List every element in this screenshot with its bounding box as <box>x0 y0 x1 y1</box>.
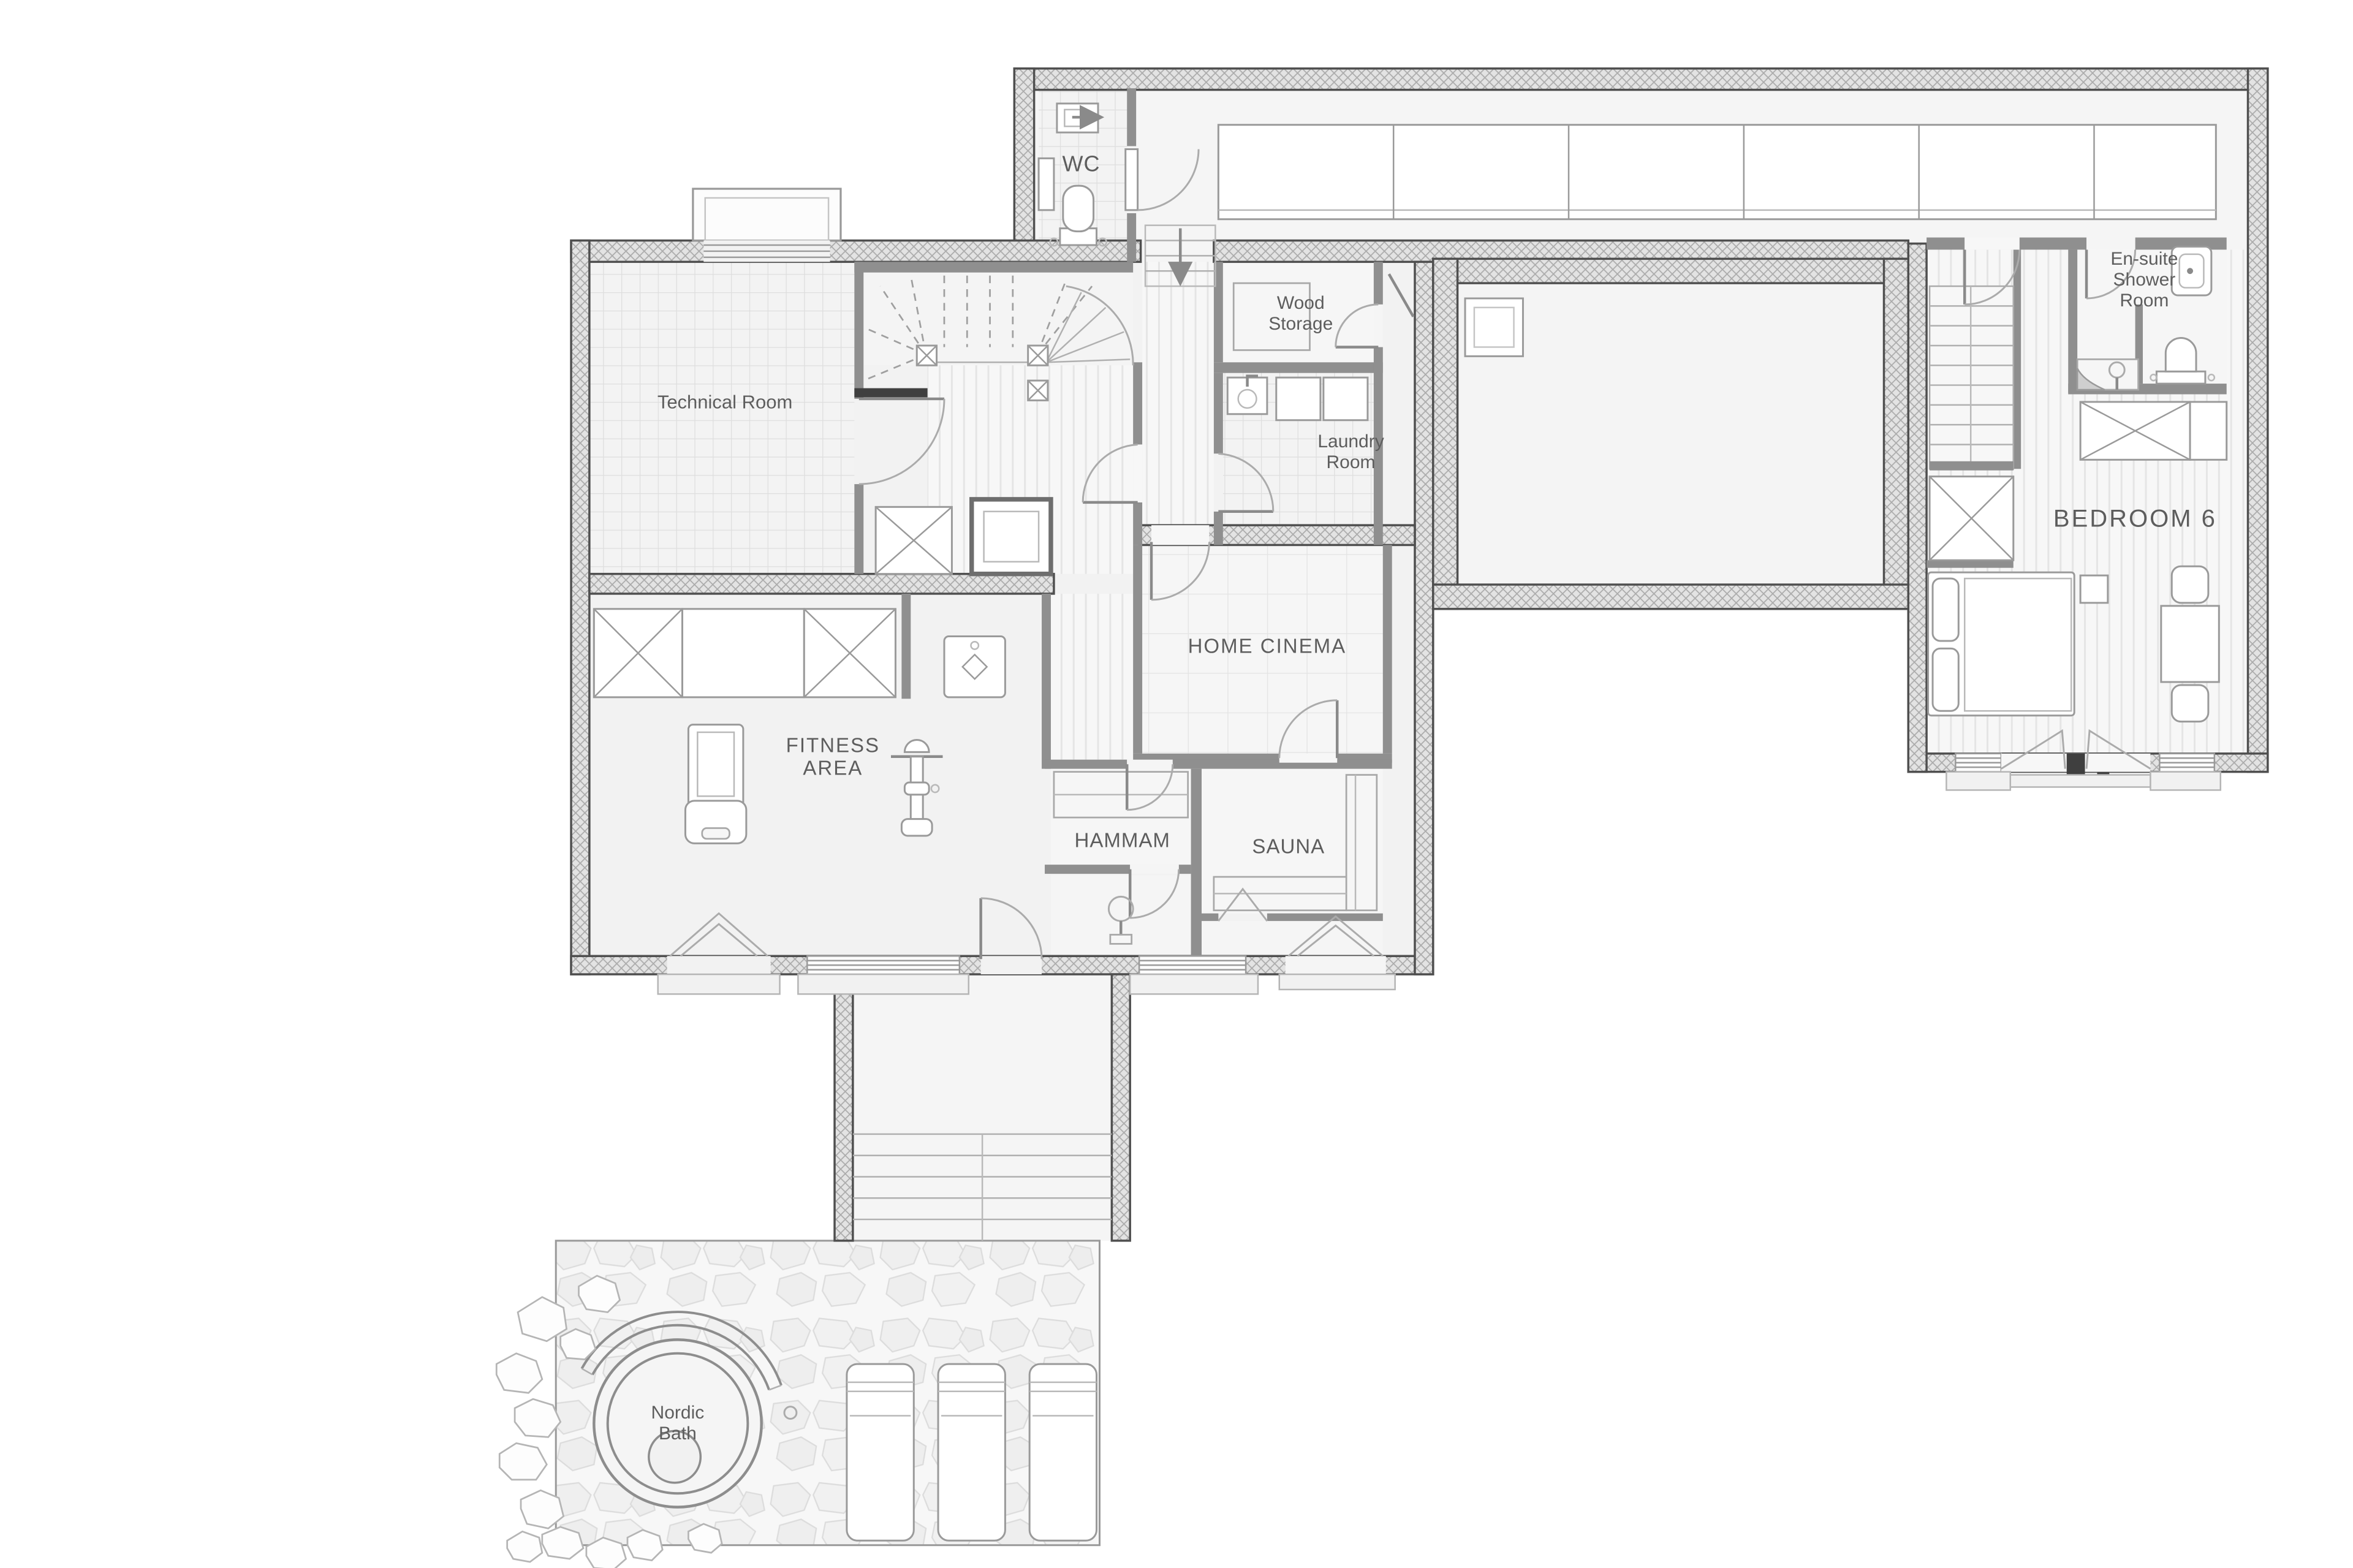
central-room-wall-top <box>1433 259 1908 283</box>
floor-plan: WC Wood Storage Laundry Room Technical R… <box>0 0 2353 1568</box>
wall-wing-left <box>1908 244 1927 772</box>
bed-icon <box>1928 572 2075 716</box>
fitness-window <box>798 956 968 994</box>
corridor-b-floor <box>1051 594 1133 760</box>
corridor-a-floor <box>1142 262 1214 545</box>
laundry-sink-icon <box>1227 376 1267 414</box>
basin-cabinet-icon <box>944 637 1005 697</box>
technical-room-floor <box>589 262 857 574</box>
central-room-wall-right <box>1884 259 1908 608</box>
wall-leftblock-top-w <box>571 241 1141 262</box>
wing-stairs <box>1930 286 2014 471</box>
wardrobe-run <box>1218 125 2216 219</box>
dryer-icon <box>1324 377 1368 420</box>
passage-wall-right <box>1112 974 1130 1241</box>
sun-loungers <box>847 1364 1097 1540</box>
ensuite-shower-icon <box>2077 359 2138 390</box>
sauna-bench-side <box>1346 775 1377 911</box>
wall-band-mid <box>589 574 1054 594</box>
central-room <box>1465 298 1523 356</box>
lift-shaft <box>972 499 1051 574</box>
sauna-vestibule-floor <box>1202 921 1383 956</box>
lounger-icon <box>1029 1364 1096 1540</box>
ensuite-basin-icon <box>2172 246 2211 295</box>
wall-top-left <box>1014 69 1034 262</box>
wood-stack <box>1233 283 1309 350</box>
lounger-icon <box>938 1364 1005 1540</box>
passage-wall-left <box>835 974 853 1241</box>
treadmill-icon <box>685 725 746 844</box>
wall-leftblock-right <box>1415 262 1433 974</box>
washer-icon <box>1276 377 1320 420</box>
wardrobe-icon <box>876 507 952 574</box>
floor-plan-drawing <box>0 0 2353 1568</box>
vestibule-window <box>1130 956 1258 994</box>
ensuite-wardrobe-icon <box>2080 402 2227 460</box>
wc-counter <box>1039 158 1054 210</box>
home-cinema-floor <box>1142 545 1383 753</box>
central-room-wall-bottom <box>1433 585 1908 609</box>
sink-icon <box>1057 104 1098 132</box>
central-room-wall-left <box>1433 259 1458 608</box>
light-well <box>693 189 841 240</box>
wall-right <box>2248 69 2268 772</box>
winder-stair-floor <box>863 262 1133 365</box>
wing-wardrobe-icon <box>1930 477 2014 561</box>
wall-leftblock-left <box>571 241 589 975</box>
nightstand-icon <box>2080 575 2108 603</box>
lounger-icon <box>847 1364 914 1540</box>
wall-top <box>1014 69 2268 90</box>
light-well-window <box>703 241 830 262</box>
